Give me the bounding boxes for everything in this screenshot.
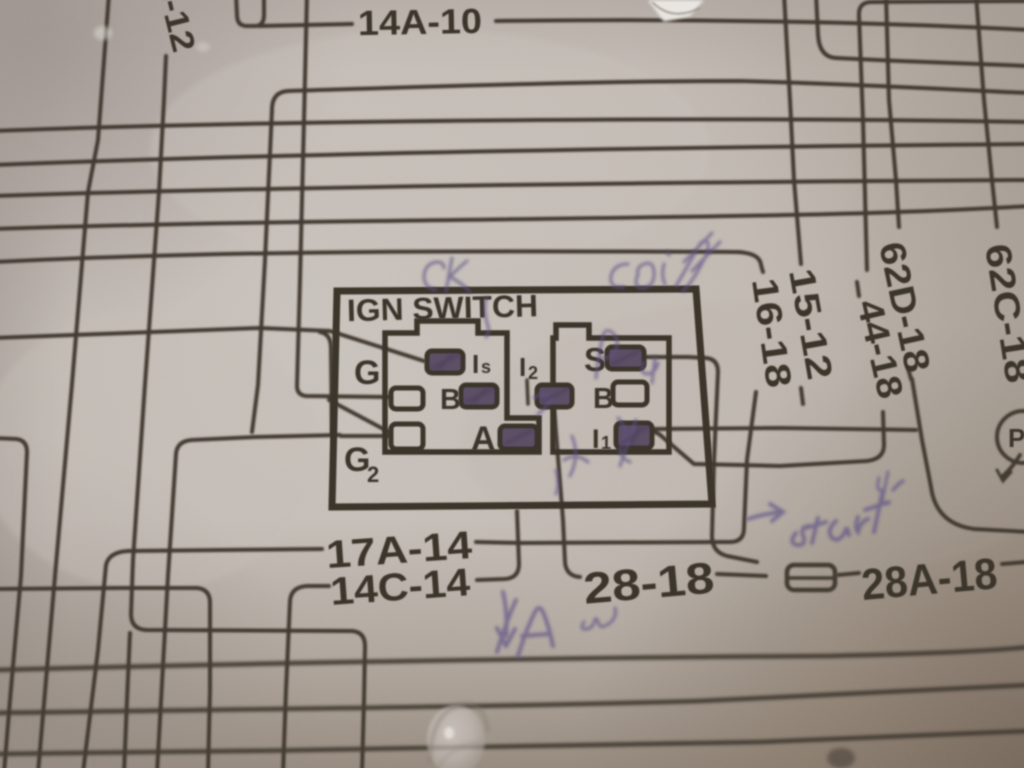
svg-text:14A-10: 14A-10 bbox=[358, 2, 483, 43]
svg-text:I: I bbox=[519, 352, 526, 382]
svg-text:s: s bbox=[481, 357, 491, 377]
svg-text:2: 2 bbox=[367, 462, 379, 487]
svg-text:IGN SWITCH: IGN SWITCH bbox=[347, 288, 539, 328]
svg-text:I: I bbox=[592, 424, 600, 454]
svg-text:A: A bbox=[471, 420, 496, 458]
svg-text:1: 1 bbox=[601, 433, 611, 453]
svg-text:Pl: Pl bbox=[1008, 423, 1024, 453]
svg-text:G: G bbox=[354, 354, 380, 392]
svg-text:2: 2 bbox=[528, 363, 538, 383]
svg-text:I: I bbox=[472, 349, 479, 379]
svg-text:B: B bbox=[440, 384, 461, 416]
svg-text:B: B bbox=[593, 383, 614, 415]
